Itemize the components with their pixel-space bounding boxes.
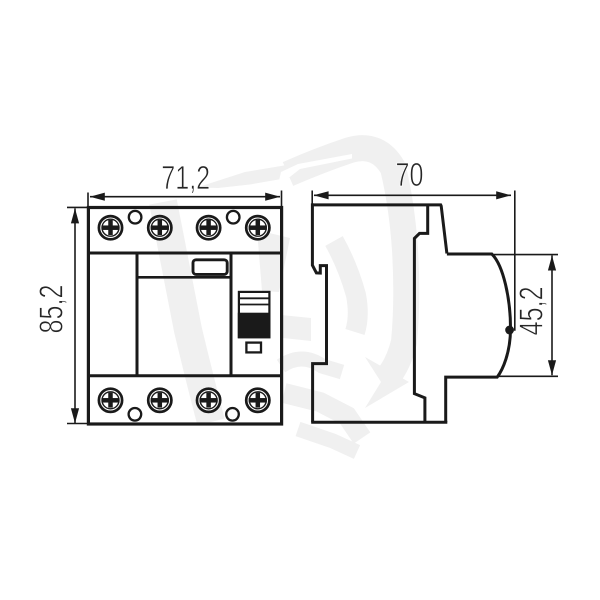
svg-text:85,2: 85,2 [33,285,70,334]
svg-text:71,2: 71,2 [161,159,210,196]
svg-text:70: 70 [396,157,424,194]
svg-text:45,2: 45,2 [513,286,550,335]
